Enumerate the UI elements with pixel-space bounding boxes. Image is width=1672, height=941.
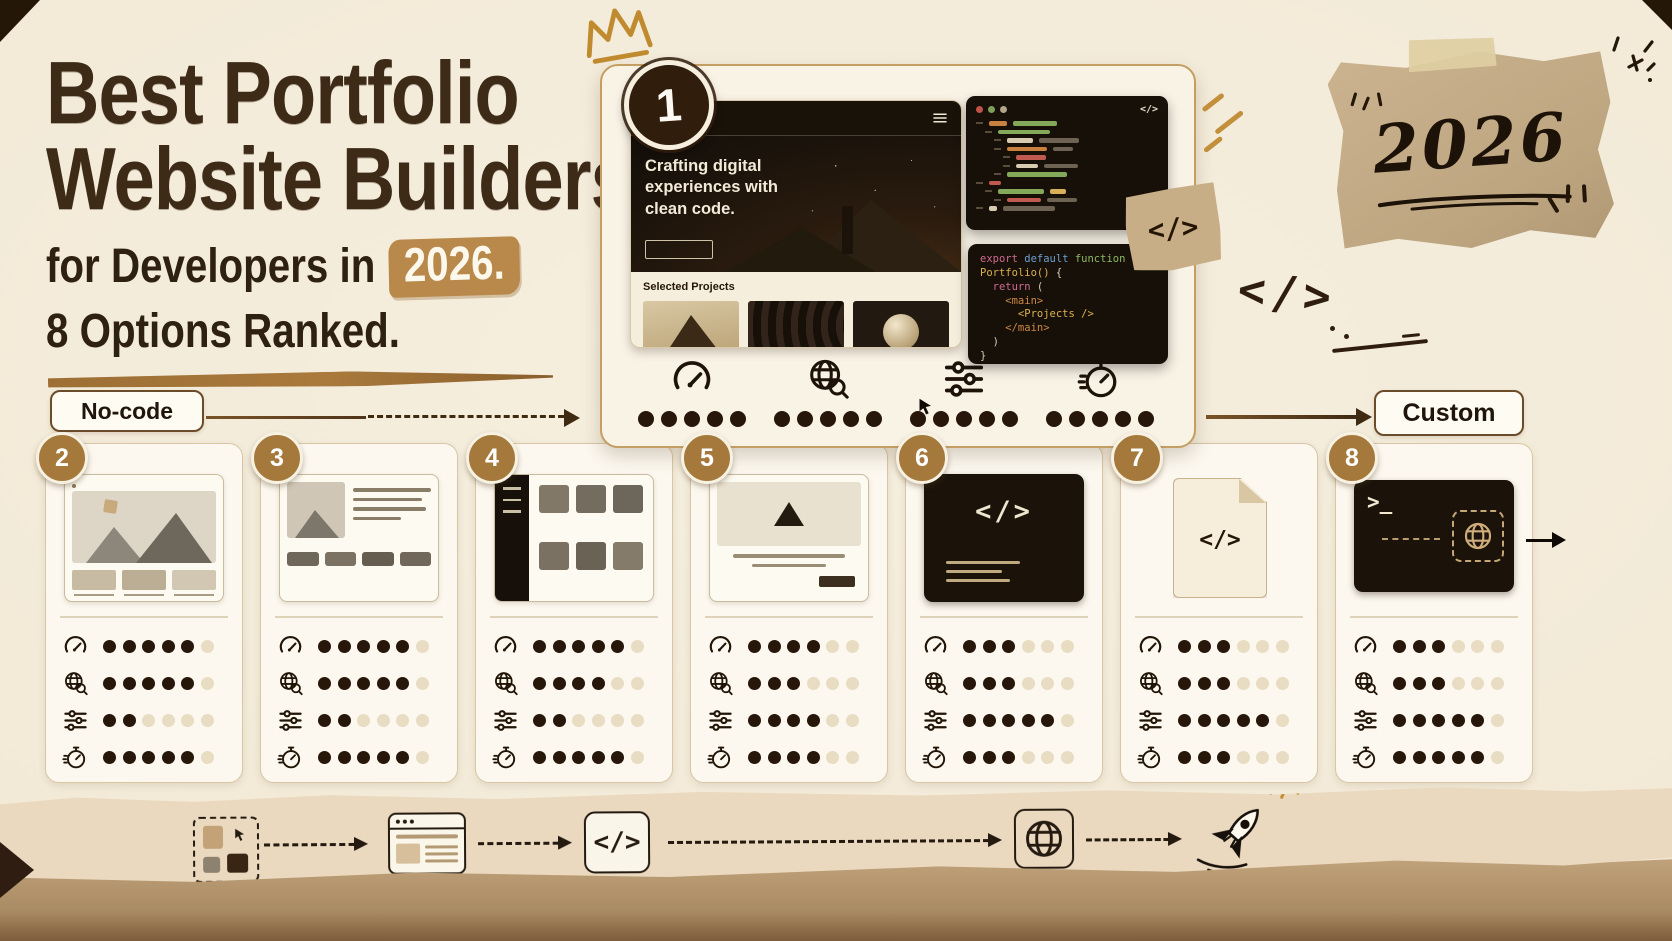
- gold-dash-doodle: [1214, 110, 1244, 134]
- speedometer-icon: [492, 633, 519, 660]
- card-divider: [60, 616, 228, 618]
- components-icon: [193, 817, 259, 883]
- rating-dots: [1393, 677, 1504, 690]
- flow-arrow: [668, 839, 998, 844]
- rating-dots: [318, 640, 429, 653]
- metric-row-sliders: [1137, 702, 1309, 739]
- title-line-2: Website Builders: [46, 136, 684, 222]
- metric-row-sliders: [707, 702, 879, 739]
- metric-row-stopwatch: [277, 739, 449, 776]
- rank-badge: 3: [251, 432, 303, 484]
- metric-row-stopwatch: [707, 739, 879, 776]
- globe-seo-icon: [492, 670, 519, 697]
- builder-metrics: [62, 628, 234, 776]
- rank-badge: 6: [896, 432, 948, 484]
- globe-seo-icon: [922, 670, 949, 697]
- builder-thumbnail: [279, 474, 439, 602]
- builder-card-rank-7: 7 </>: [1120, 443, 1318, 783]
- rank-number: 4: [485, 444, 499, 473]
- rating-dots: [963, 751, 1074, 764]
- window-dot-green: [988, 106, 995, 113]
- rating-dots: [1178, 714, 1289, 727]
- mockup-hero-button: [645, 240, 713, 259]
- subtitle-line-2: 8 Options Ranked.: [46, 304, 684, 359]
- project-thumb-waves: [748, 301, 844, 348]
- globe-icon: [1014, 809, 1074, 869]
- metric-row-globe-seo: [277, 665, 449, 702]
- speedometer-icon: [277, 633, 304, 660]
- metric-row-globe-seo: [707, 665, 879, 702]
- window-dot-red: [976, 106, 983, 113]
- metric-row-stopwatch: [1352, 739, 1524, 776]
- builder-metrics: [277, 628, 449, 776]
- metric-row-sliders: [1352, 702, 1524, 739]
- rank-badge: 2: [36, 432, 88, 484]
- browser-window-icon: [388, 812, 466, 874]
- card-divider: [705, 616, 873, 618]
- sliders-icon: [492, 707, 519, 734]
- rank-number: 8: [1345, 444, 1359, 473]
- kraft-code-sticker: </>: [1123, 182, 1224, 274]
- metric-row-speedometer: [922, 628, 1094, 665]
- card-divider: [1350, 616, 1518, 618]
- kraft-paper-note: 2026: [1327, 47, 1616, 253]
- stopwatch-icon: [1352, 744, 1379, 771]
- speedometer-icon: [1137, 633, 1164, 660]
- speedometer-icon: [669, 356, 715, 402]
- speedometer-icon: [922, 633, 949, 660]
- rating-dots: [748, 677, 859, 690]
- rating-dots: [1393, 640, 1504, 653]
- speedometer-icon: [707, 633, 734, 660]
- rating-dots: [1178, 677, 1289, 690]
- featured-metric-stopwatch: [1046, 356, 1154, 442]
- editor-titlebar: </>: [976, 104, 1158, 115]
- project-thumb-sphere: [853, 301, 949, 348]
- speedometer-icon: [1352, 633, 1379, 660]
- metric-row-sliders: [922, 702, 1094, 739]
- card-divider: [490, 616, 658, 618]
- rank-number: 7: [1130, 444, 1144, 473]
- rating-dots: [318, 677, 429, 690]
- rating-dots: [103, 640, 214, 653]
- rating-dots: [963, 714, 1074, 727]
- brush-underline: [48, 369, 553, 390]
- metric-row-globe-seo: [1352, 665, 1524, 702]
- metric-row-speedometer: [277, 628, 449, 665]
- title-block: Best Portfolio Website Builders for Deve…: [46, 50, 684, 359]
- rating-dots: [638, 411, 746, 427]
- mockup-projects-section: Selected Projects: [631, 272, 961, 348]
- rating-dots: [963, 640, 1074, 653]
- builder-cards-row: 2 3 4 5 6 </> 7 </> 8 >_: [45, 443, 1519, 781]
- builder-thumbnail: >_: [1354, 474, 1514, 602]
- window-dot-beige: [1000, 106, 1007, 113]
- builder-metrics: [1352, 628, 1524, 776]
- builder-card-rank-2: 2: [45, 443, 243, 783]
- flow-arrow: [1086, 838, 1178, 842]
- rating-dots: [533, 640, 644, 653]
- hamburger-menu-icon: [931, 109, 949, 127]
- rating-dots: [774, 411, 882, 427]
- globe-seo-icon: [1137, 670, 1164, 697]
- mockup-headline: Crafting digital experiences with clean …: [645, 156, 805, 220]
- handdrawn-code-doodle: </>: [1236, 262, 1338, 324]
- rating-dots: [748, 714, 859, 727]
- builder-metrics: [707, 628, 879, 776]
- builder-metrics: [492, 628, 664, 776]
- rating-dots: [1046, 411, 1154, 427]
- code-tag-icon: </>: [584, 811, 650, 873]
- stopwatch-icon: [1137, 744, 1164, 771]
- stopwatch-icon: [922, 744, 949, 771]
- metric-row-speedometer: [62, 628, 234, 665]
- subtitle-line: for Developers in 2026.: [46, 238, 684, 296]
- axis-label-no-code: No-code: [50, 390, 204, 432]
- sliders-icon: [62, 707, 89, 734]
- builder-thumbnail: [709, 474, 869, 602]
- sliders-icon: [1352, 707, 1379, 734]
- cursor-icon: [231, 827, 248, 844]
- builder-card-rank-6: 6 </>: [905, 443, 1103, 783]
- metric-row-sliders: [62, 702, 234, 739]
- rating-dots: [963, 677, 1074, 690]
- stopwatch-icon: [707, 744, 734, 771]
- corner-decoration-top-right: [1642, 0, 1672, 30]
- axis-arrow-left: [206, 409, 586, 427]
- sliders-icon: [707, 707, 734, 734]
- globe-seo-icon: [805, 356, 851, 402]
- rating-dots: [318, 751, 429, 764]
- metric-row-globe-seo: [62, 665, 234, 702]
- sliders-icon: [922, 707, 949, 734]
- metric-row-stopwatch: [922, 739, 1094, 776]
- mockup-projects-label: Selected Projects: [643, 281, 949, 293]
- metric-row-speedometer: [707, 628, 879, 665]
- metric-row-speedometer: [1352, 628, 1524, 665]
- featured-metric-speedometer: [638, 356, 746, 442]
- stopwatch-icon: [62, 744, 89, 771]
- rank-number: 5: [700, 444, 714, 473]
- rating-dots: [1393, 714, 1504, 727]
- metric-row-sliders: [492, 702, 664, 739]
- rating-dots: [103, 714, 214, 727]
- metric-row-stopwatch: [62, 739, 234, 776]
- rating-dots: [103, 751, 214, 764]
- doodle-dot: [1344, 334, 1349, 339]
- globe-seo-icon: [1352, 670, 1379, 697]
- builder-thumbnail: </>: [924, 474, 1084, 602]
- custom-direction-arrow: [1526, 532, 1566, 548]
- builder-metrics: [1137, 628, 1309, 776]
- rating-dots: [103, 677, 214, 690]
- featured-metric-globe-seo: [774, 356, 882, 442]
- sliders-icon: [1137, 707, 1164, 734]
- metric-row-stopwatch: [492, 739, 664, 776]
- stopwatch-icon: [492, 744, 519, 771]
- rocket-sparkles: [1268, 781, 1302, 819]
- rank-badge: 7: [1111, 432, 1163, 484]
- builder-card-rank-3: 3: [260, 443, 458, 783]
- rating-dots: [748, 751, 859, 764]
- rating-dots: [533, 677, 644, 690]
- card-divider: [920, 616, 1088, 618]
- builder-thumbnail: [64, 474, 224, 602]
- rank-1-badge: 1: [624, 60, 714, 150]
- doodle-underline: [1332, 339, 1428, 353]
- rank-number: 2: [55, 444, 69, 473]
- subtitle-prefix: for Developers in: [46, 241, 375, 293]
- builder-card-rank-5: 5: [690, 443, 888, 783]
- project-thumb-pyramid: [643, 301, 739, 348]
- doodle-dot: [1330, 326, 1335, 331]
- year-highlight-chip: 2026.: [388, 237, 520, 299]
- card-divider: [275, 616, 443, 618]
- globe-seo-icon: [707, 670, 734, 697]
- rank-1-number: 1: [654, 77, 683, 133]
- infographic-board: Best Portfolio Website Builders for Deve…: [0, 0, 1672, 941]
- rating-dots: [1178, 640, 1289, 653]
- metric-row-globe-seo: [492, 665, 664, 702]
- rating-dots: [533, 714, 644, 727]
- rank-number: 3: [270, 444, 284, 473]
- rank-badge: 5: [681, 432, 733, 484]
- sparkle-star-doodle: [1608, 34, 1660, 98]
- rating-dots: [748, 640, 859, 653]
- metric-row-stopwatch: [1137, 739, 1309, 776]
- globe-seo-icon: [62, 670, 89, 697]
- featured-metrics: [610, 356, 1182, 442]
- builder-thumbnail: [494, 474, 654, 602]
- mockup-hero: Crafting digital experiences with clean …: [631, 136, 961, 272]
- metric-row-speedometer: [1137, 628, 1309, 665]
- globe-seo-icon: [277, 670, 304, 697]
- flow-arrow: [478, 842, 568, 846]
- axis-arrow-right: [1206, 408, 1372, 426]
- card-divider: [1135, 616, 1303, 618]
- mouse-cursor-icon: [914, 396, 936, 418]
- sparkle-doodle-left: [1346, 92, 1388, 132]
- gold-dash-doodle: [1203, 136, 1223, 153]
- axis-label-custom: Custom: [1374, 390, 1524, 436]
- corner-decoration-top-left: [0, 0, 40, 42]
- rank-badge: 8: [1326, 432, 1378, 484]
- builder-metrics: [922, 628, 1094, 776]
- sliders-icon: [277, 707, 304, 734]
- mockup-project-thumbnails: [643, 301, 949, 348]
- metric-row-globe-seo: [1137, 665, 1309, 702]
- rank-number: 6: [915, 444, 929, 473]
- rating-dots: [1178, 751, 1289, 764]
- gold-dash-doodle: [1201, 92, 1224, 112]
- metric-row-sliders: [277, 702, 449, 739]
- rating-dots: [533, 751, 644, 764]
- rating-dots: [1393, 751, 1504, 764]
- speedometer-icon: [62, 633, 89, 660]
- flow-arrow: [264, 843, 364, 847]
- metric-row-globe-seo: [922, 665, 1094, 702]
- builder-thumbnail: </>: [1139, 474, 1299, 602]
- builder-card-rank-8: 8 >_: [1335, 443, 1533, 783]
- doodle-underline: [1402, 333, 1420, 338]
- builder-card-rank-4: 4: [475, 443, 673, 783]
- stopwatch-icon: [277, 744, 304, 771]
- editor-code-icon: </>: [1140, 104, 1158, 115]
- rank-badge: 4: [466, 432, 518, 484]
- metric-row-speedometer: [492, 628, 664, 665]
- rating-dots: [318, 714, 429, 727]
